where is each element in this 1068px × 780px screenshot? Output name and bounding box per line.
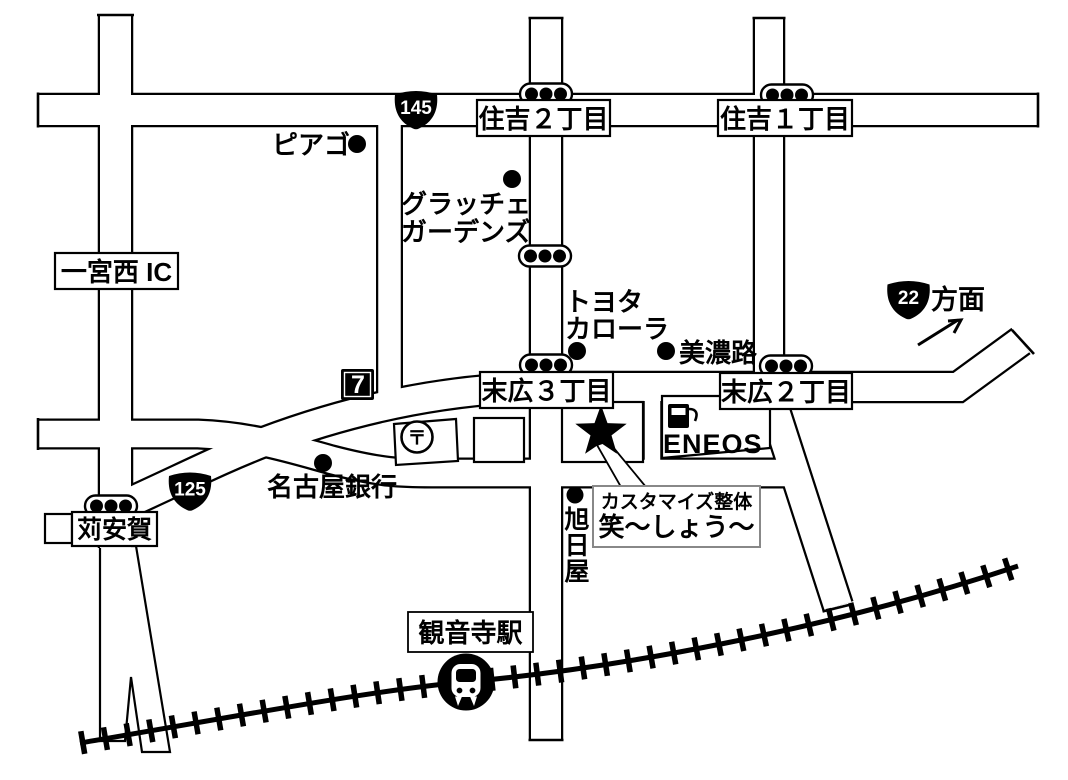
map-canvas: 7 〒 カスタマイズ整体 笑～しょう～ 住吉２丁目 住吉１丁目 末広３丁目 xyxy=(0,0,1068,780)
sumiyoshi1-label: 住吉１丁目 xyxy=(720,104,850,134)
post-office-mark: 〒 xyxy=(407,428,426,449)
train-light-left xyxy=(457,688,463,694)
asahiya-label-char1: 旭 xyxy=(563,506,589,534)
gratche-label-line2: ガーデンズ xyxy=(401,217,530,247)
station-label: 観音寺駅 xyxy=(418,618,522,648)
route-22-number: 22 xyxy=(898,288,919,309)
access-map: 7 〒 カスタマイズ整体 笑～しょう～ 住吉２丁目 住吉１丁目 末広３丁目 xyxy=(0,0,1068,780)
direction-arrow-icon xyxy=(918,320,961,345)
minoji-dot xyxy=(657,342,675,360)
kariyasuka-label: 苅安賀 xyxy=(77,515,152,544)
train-light-right xyxy=(470,688,476,694)
route-22-direction: 方面 xyxy=(931,284,985,315)
kariyasuka-west-stub xyxy=(45,514,72,543)
label-boxes: 住吉２丁目 住吉１丁目 末広３丁目 末広２丁目 苅安賀 一宮西 IC 観音寺駅 xyxy=(45,100,852,652)
nagoya-bank-label: 名古屋銀行 xyxy=(267,472,397,502)
asahiya-label-char2: 日 xyxy=(564,532,589,560)
train-window xyxy=(456,669,476,682)
seven-eleven-icon: 7 xyxy=(341,369,374,400)
middle-block xyxy=(474,418,524,462)
asahiya-dot xyxy=(567,487,584,504)
nagoya-bank-dot xyxy=(314,454,332,472)
destination-line2: 笑～しょう～ xyxy=(598,512,754,542)
post-office-icon: 〒 xyxy=(402,422,433,453)
route-125-number: 125 xyxy=(174,480,206,501)
toyota-label-line1: トヨタ xyxy=(565,287,643,317)
gratche-label-line1: グラッチェ xyxy=(401,189,531,219)
toyota-label-line2: カローラ xyxy=(565,314,669,344)
minoji-label: 美濃路 xyxy=(679,338,758,368)
ichinomiya-ic-label: 一宮西 IC xyxy=(61,257,172,287)
suehiro3-label: 末広３丁目 xyxy=(481,376,611,406)
piago-label: ピアゴ xyxy=(272,130,350,160)
gratche-dot xyxy=(503,170,521,188)
road-left-fork xyxy=(100,546,170,752)
station-icon xyxy=(438,654,495,711)
eneos-label: ENEOS xyxy=(663,429,763,459)
sumiyoshi2-label: 住吉２丁目 xyxy=(478,104,608,134)
destination-line1: カスタマイズ整体 xyxy=(601,490,753,513)
asahiya-label-char3: 屋 xyxy=(564,558,589,586)
seven-eleven-7: 7 xyxy=(351,371,365,399)
suehiro2-label: 末広２丁目 xyxy=(721,377,851,407)
toyota-dot xyxy=(568,342,586,360)
piago-dot xyxy=(348,135,366,153)
signal-center-mid xyxy=(519,246,571,267)
route-145-number: 145 xyxy=(400,98,432,119)
